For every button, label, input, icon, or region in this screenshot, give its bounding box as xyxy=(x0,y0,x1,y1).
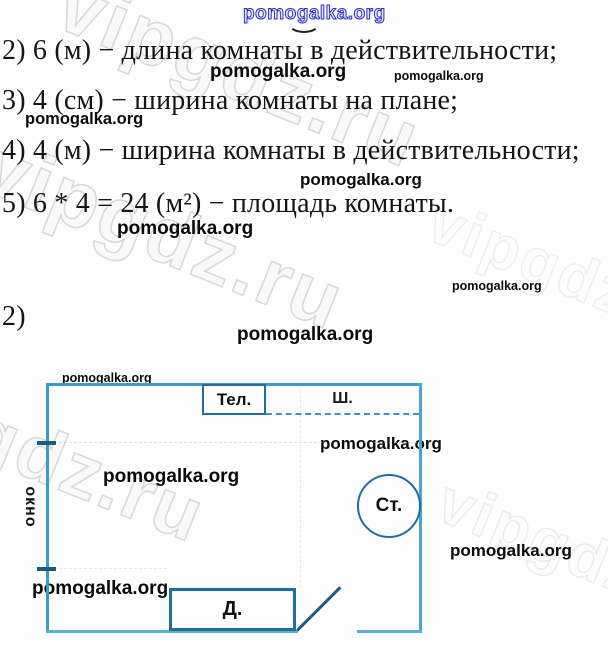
pomogalka-watermark: pomogalka.org xyxy=(320,434,442,454)
scanned-solution-page: vipgdz.ru vipgdz.ru vipgdz.ru vipgdz.ru … xyxy=(0,0,608,649)
pomogalka-watermark: pomogalka.org xyxy=(32,578,168,600)
window-tick-upper xyxy=(37,441,56,445)
room-wall-left xyxy=(46,383,49,633)
pomogalka-watermark: pomogalka.org xyxy=(300,170,422,190)
pomogalka-watermark: pomogalka.org xyxy=(117,218,253,240)
door-swing-line xyxy=(296,586,341,631)
tv-box: Тел. xyxy=(202,384,266,415)
grid-artifact xyxy=(49,568,167,569)
pomogalka-watermark: pomogalka.org xyxy=(103,466,239,488)
solution-line-4: 4) 4 (м) − ширина комнаты в действительн… xyxy=(2,135,580,167)
window-label: окно xyxy=(21,481,39,533)
table-label: Ст. xyxy=(376,495,403,517)
pomogalka-watermark: pomogalka.org xyxy=(25,110,143,129)
wardrobe-label: Ш. xyxy=(332,390,353,408)
tv-label: Тел. xyxy=(217,390,252,410)
sofa-box: Д. xyxy=(169,588,296,631)
wardrobe-box: Ш. xyxy=(266,385,419,415)
window-tick-lower xyxy=(37,567,56,571)
scan-arc-artifact xyxy=(288,14,320,33)
pomogalka-watermark: pomogalka.org xyxy=(450,541,572,561)
room-wall-bottom-right-segment xyxy=(357,630,422,633)
grid-artifact xyxy=(300,390,301,588)
pomogalka-watermark: pomogalka.org xyxy=(237,324,373,346)
pomogalka-watermark-small: pomogalka.org xyxy=(394,69,484,83)
sofa-label: Д. xyxy=(223,598,243,621)
table-circle: Ст. xyxy=(357,474,421,538)
solution-line-5: 5) 6 * 4 = 24 (м²) − площадь комнаты. xyxy=(2,188,454,220)
part-2-label: 2) xyxy=(2,301,26,333)
pomogalka-watermark-small: pomogalka.org xyxy=(452,279,542,293)
pomogalka-watermark: pomogalka.org xyxy=(210,61,346,83)
